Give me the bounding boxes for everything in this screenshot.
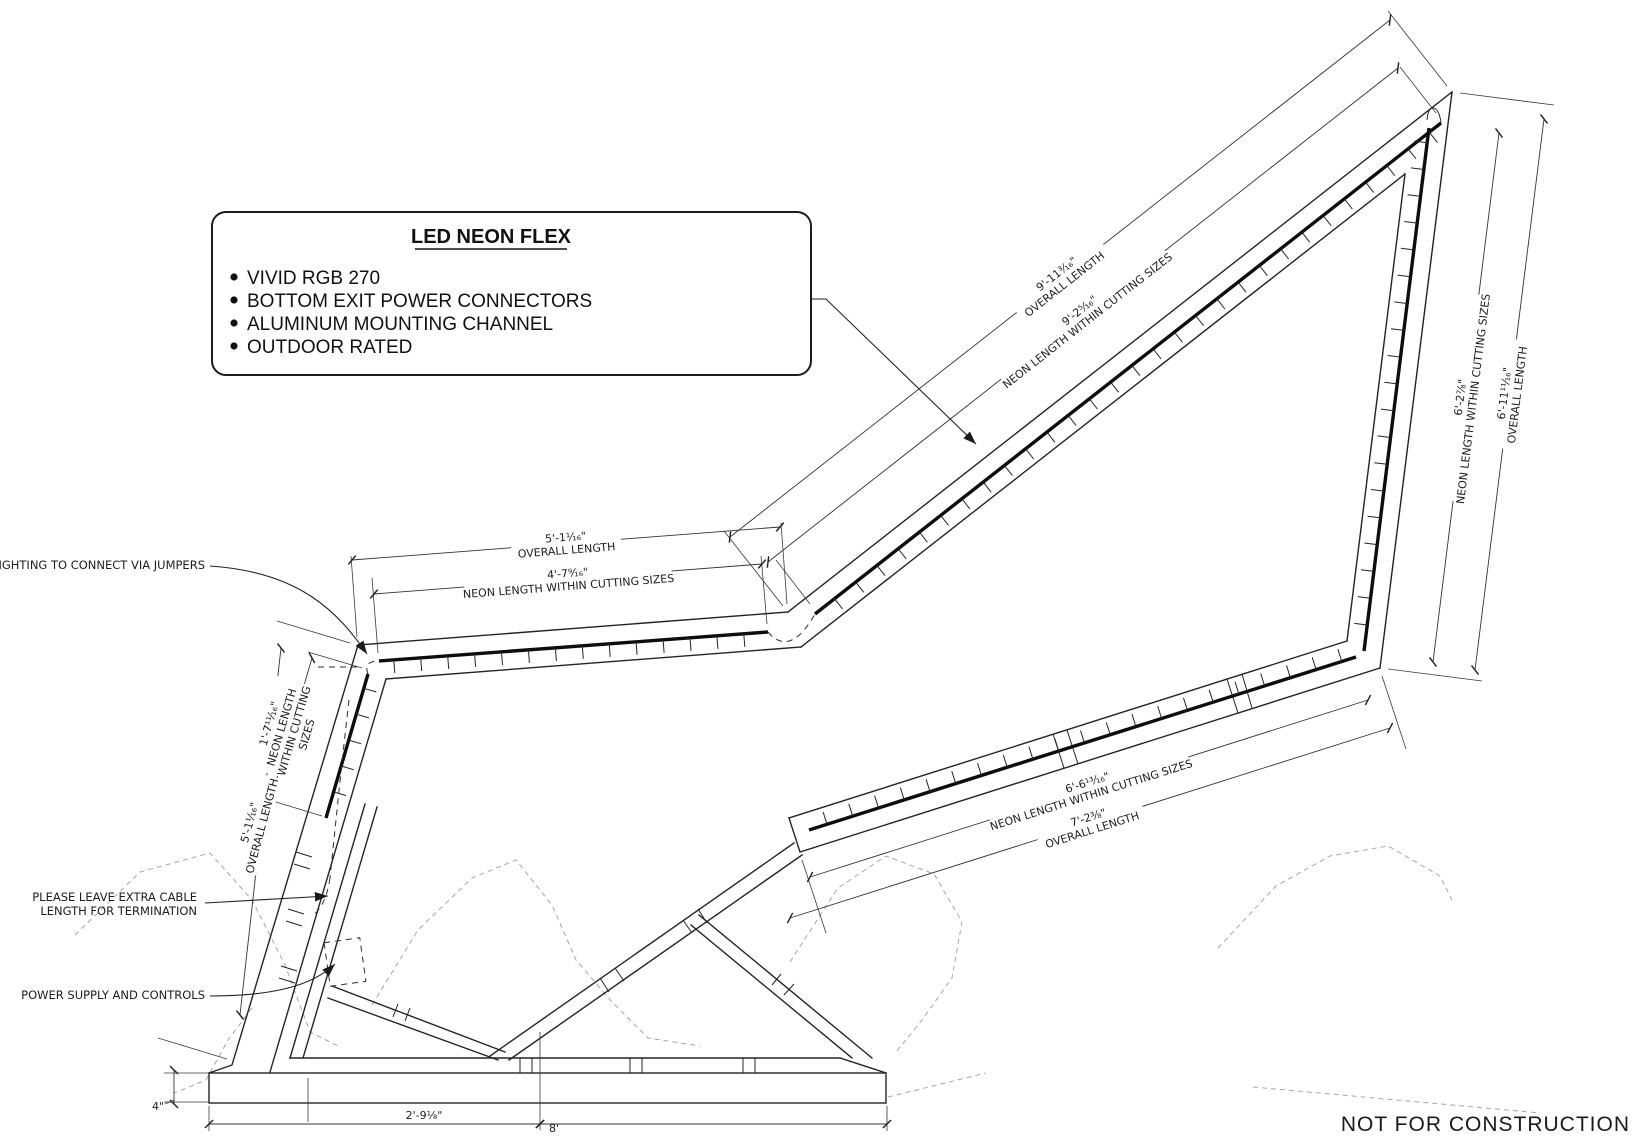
led-neon-flex-drawing: 9'-11³⁄₁₆" OVERALL LENGTH 9'-2⁵⁄₁₆" NEON…	[0, 0, 1639, 1143]
label-right-neon: 6'-2⁷⁄₈" NEON LENGTH WITHIN CUTTING SIZE…	[1439, 291, 1493, 505]
annotation-extra-cable-2: LENGTH FOR TERMINATION	[40, 904, 197, 918]
callout-leader	[811, 299, 976, 444]
callout-bullet-2: BOTTOM EXIT POWER CONNECTORS	[247, 291, 592, 312]
neon-middle-horizontal	[379, 632, 768, 661]
annotation-jumpers: LIGHTING TO CONNECT VIA JUMPERS	[0, 558, 205, 572]
bullet-dot	[230, 273, 237, 280]
label-left-overall: 5'-1¹⁄₁₆" OVERALL LENGTH	[229, 772, 282, 876]
bullet-dot	[230, 342, 237, 349]
extension-lines	[158, 11, 1554, 1131]
drawing-canvas: 9'-11³⁄₁₆" OVERALL LENGTH 9'-2⁵⁄₁₆" NEON…	[0, 0, 1639, 1143]
callout-bullet-1: VIVID RGB 270	[247, 268, 380, 289]
callout-title: LED NEON FLEX	[411, 226, 572, 248]
base-width-left-label: 2'-9¹⁄₈"	[406, 1109, 443, 1122]
callout-bullet-3: ALUMINUM MOUNTING CHANNEL	[247, 314, 553, 335]
callout-box: LED NEON FLEX VIVID RGB 270 BOTTOM EXIT …	[212, 212, 976, 444]
joint-marks	[279, 674, 1252, 1073]
annotation-power-supply: POWER SUPPLY AND CONTROLS	[21, 988, 205, 1002]
annotation-leaders	[205, 566, 367, 996]
leader-extra-cable	[205, 896, 328, 903]
base-width-right-label: 8'	[549, 1122, 559, 1135]
callout-bullet-4: OUTDOOR RATED	[247, 337, 412, 358]
annotation-extra-cable-1: PLEASE LEAVE EXTRA CABLE	[32, 890, 197, 904]
neon-right-edge	[1364, 128, 1429, 651]
base-height-label: 4"	[152, 1100, 164, 1113]
label-mid-overall: 5'-1¹⁄₁₆" OVERALL LENGTH	[510, 525, 622, 561]
label-mid-neon: 4'-7⁹⁄₁₆" NEON LENGTH WITHIN CUTTING SIZ…	[461, 557, 674, 601]
footer-note: NOT FOR CONSTRUCTION	[1341, 1113, 1630, 1136]
neon-top-diagonal	[815, 123, 1441, 614]
label-right-overall: 6'-11¹¹⁄₁₆" OVERALL LENGTH	[1489, 338, 1530, 451]
power-supply-box	[324, 938, 366, 987]
dimension-lines	[174, 20, 1544, 1124]
bullet-dot	[230, 319, 237, 326]
bullet-dot	[230, 296, 237, 303]
